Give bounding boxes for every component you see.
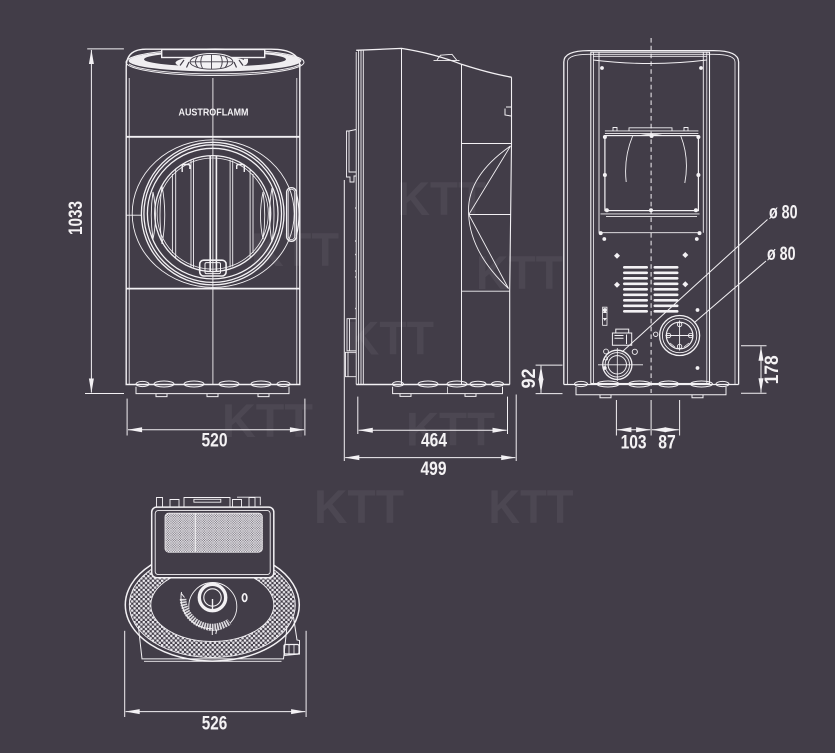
svg-text:KTT: KTT: [489, 480, 574, 533]
svg-text:499: 499: [421, 459, 447, 480]
svg-text:KTT: KTT: [314, 480, 404, 533]
svg-text:92: 92: [519, 369, 540, 389]
svg-text:178: 178: [762, 355, 783, 384]
svg-text:KTT: KTT: [397, 172, 486, 225]
svg-text:520: 520: [202, 431, 228, 452]
svg-text:87: 87: [658, 433, 676, 454]
svg-text:KTT: KTT: [347, 312, 434, 365]
svg-text:1033: 1033: [66, 201, 87, 235]
svg-text:KTT: KTT: [222, 394, 313, 447]
svg-text:526: 526: [202, 714, 228, 735]
svg-text:464: 464: [421, 431, 447, 452]
svg-text:KTT: KTT: [406, 403, 495, 456]
svg-text:ø 80: ø 80: [767, 244, 796, 265]
svg-text:AUSTROFLAMM: AUSTROFLAMM: [179, 108, 249, 119]
svg-text:103: 103: [621, 433, 647, 454]
svg-text:ø 80: ø 80: [769, 203, 798, 224]
